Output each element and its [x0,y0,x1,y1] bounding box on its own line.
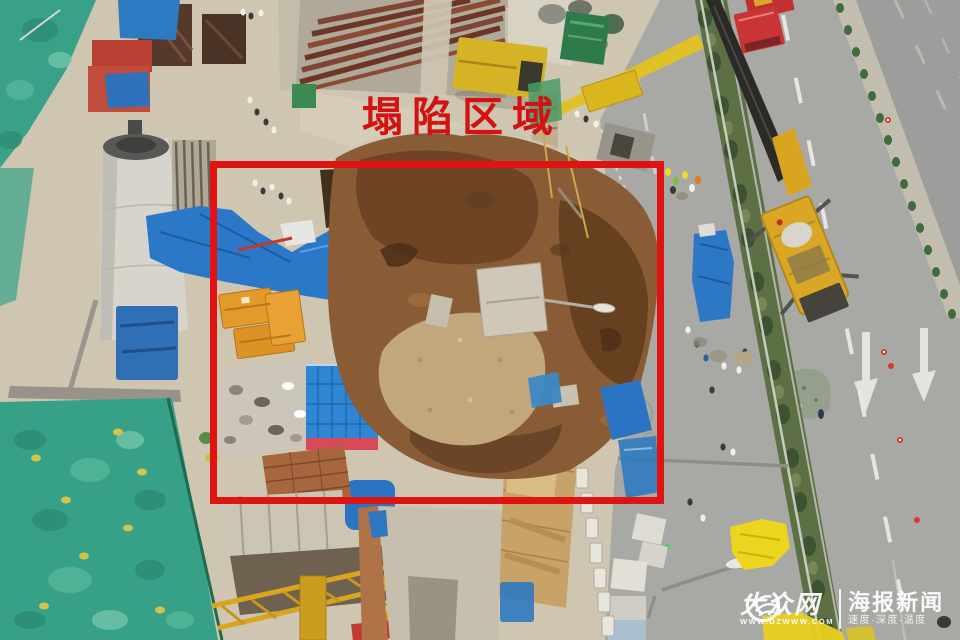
photo-scene [0,0,960,640]
blue-tarp-road [692,223,734,322]
person [937,616,951,628]
aerial-photo-road-collapse: 塌陷区域 大众网 WWW.DZWWW.COM 海报新闻 速度·深度·温度 [0,0,960,640]
blue-tarp-small [118,0,180,40]
silo-base-machine [116,306,178,380]
blue-tarp-pit [528,372,562,408]
concrete-slab [477,263,548,337]
person [818,409,824,419]
green-sign [560,11,610,65]
yellow-tarp [846,626,876,640]
rebar-wall [172,140,216,212]
green-bin [292,84,316,108]
red-machinery [88,40,152,112]
